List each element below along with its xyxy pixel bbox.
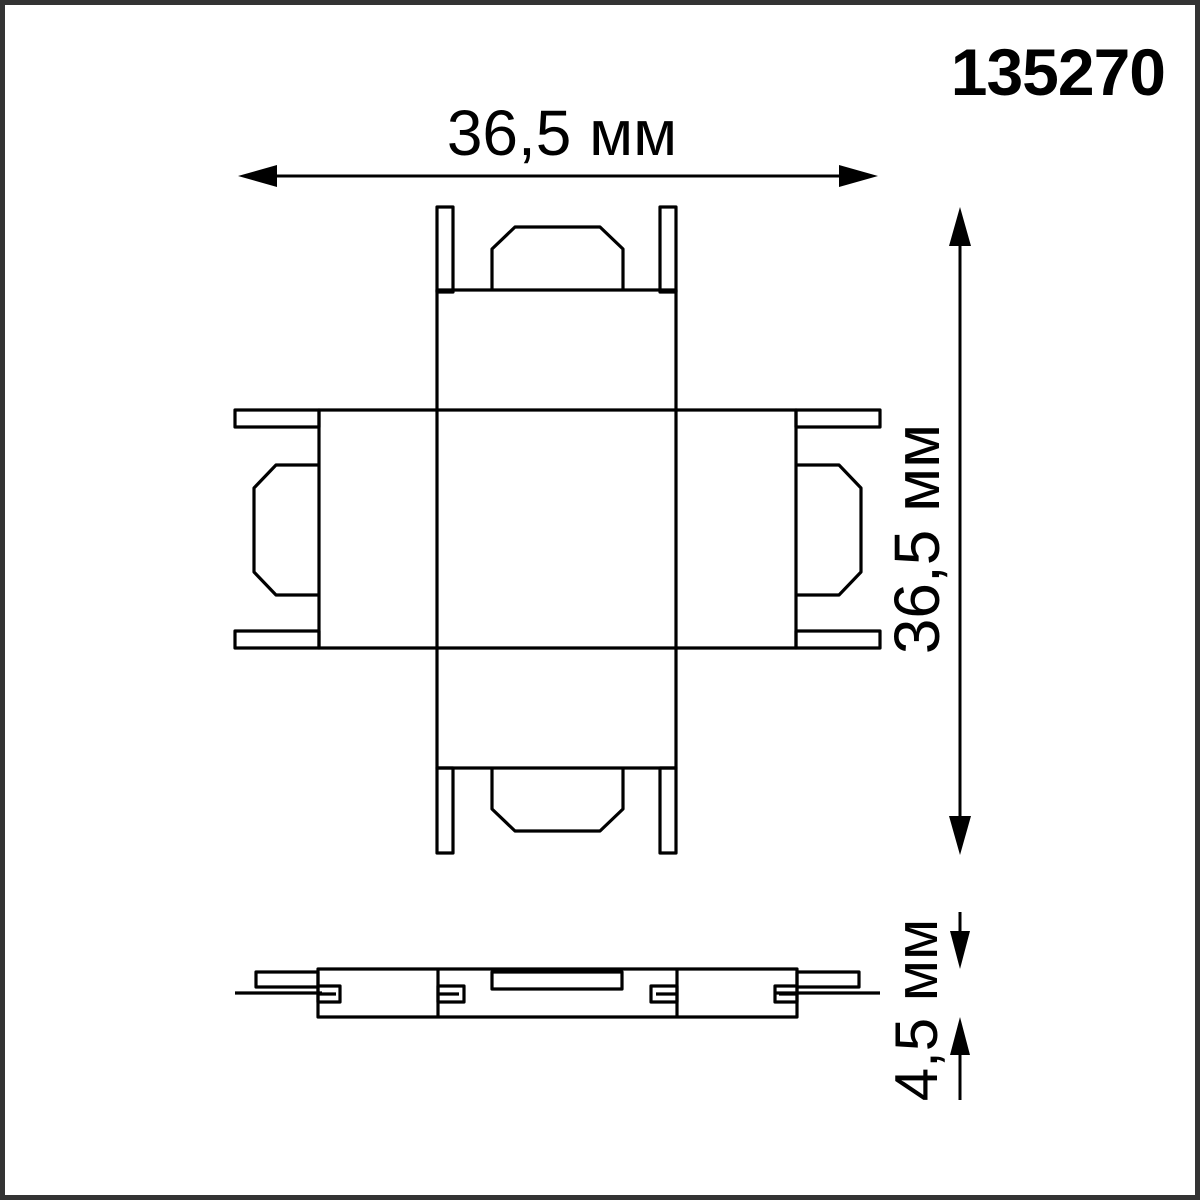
prong-left-top (235, 410, 319, 427)
thickness-dimension-label: 4,5 мм (887, 919, 947, 1102)
side-view-body (318, 969, 797, 1017)
prong-right-bottom (796, 631, 880, 648)
prong-bottom-left (437, 768, 453, 853)
prong-top-left (437, 207, 453, 292)
side-view-latch-1 (318, 986, 340, 1002)
prong-right-top (796, 410, 880, 427)
connector-tab-left (254, 465, 320, 595)
arrowhead-right-icon (839, 165, 878, 187)
side-view-latch-3 (651, 986, 677, 1002)
connector-tab-bottom (492, 767, 623, 831)
prong-bottom-right (660, 768, 676, 853)
arrowhead-down-icon (949, 816, 971, 855)
side-view-latch-2 (438, 986, 464, 1002)
connector-tab-top (492, 227, 623, 291)
top-view-vertical-arm (437, 290, 676, 768)
prong-top-right (660, 207, 676, 292)
arrowhead-up-inward-icon (950, 1017, 970, 1055)
technical-drawing (0, 0, 1200, 1200)
datasheet-page: 135270 36,5 мм 36,5 мм 4,5 мм (0, 0, 1200, 1200)
side-view-center-slot (492, 972, 622, 989)
height-dimension-label: 36,5 мм (885, 424, 949, 654)
side-view-clip-right (797, 972, 859, 987)
top-view (235, 207, 880, 853)
connector-tab-right (795, 465, 861, 595)
arrowhead-left-icon (238, 165, 277, 187)
arrowhead-down-inward-icon (950, 931, 970, 969)
thickness-dimension-arrow (950, 912, 970, 1100)
side-view (235, 969, 880, 1017)
prong-left-bottom (235, 631, 319, 648)
side-view-clip-left (256, 972, 318, 987)
top-view-horizontal-arm (319, 410, 796, 648)
part-number: 135270 (951, 39, 1165, 105)
arrowhead-up-icon (949, 207, 971, 246)
width-dimension-label: 36,5 мм (447, 101, 677, 165)
